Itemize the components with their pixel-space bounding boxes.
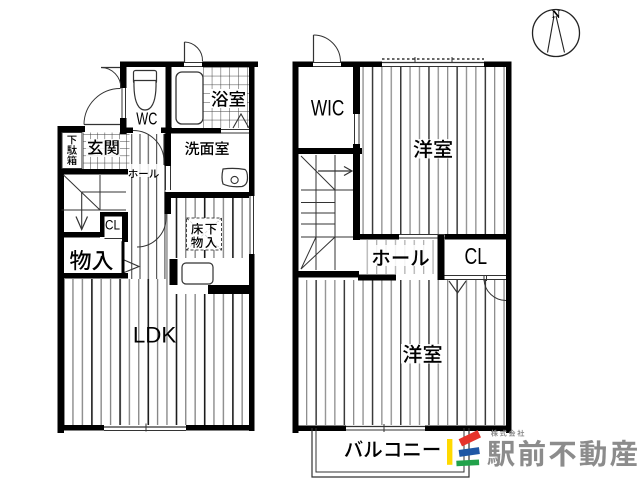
svg-text:CL: CL [105, 217, 120, 232]
svg-text:WIC: WIC [311, 95, 345, 120]
svg-text:CL: CL [465, 243, 488, 269]
svg-text:LDK: LDK [133, 322, 177, 347]
svg-text:WC: WC [136, 109, 157, 129]
svg-text:N: N [552, 7, 561, 21]
